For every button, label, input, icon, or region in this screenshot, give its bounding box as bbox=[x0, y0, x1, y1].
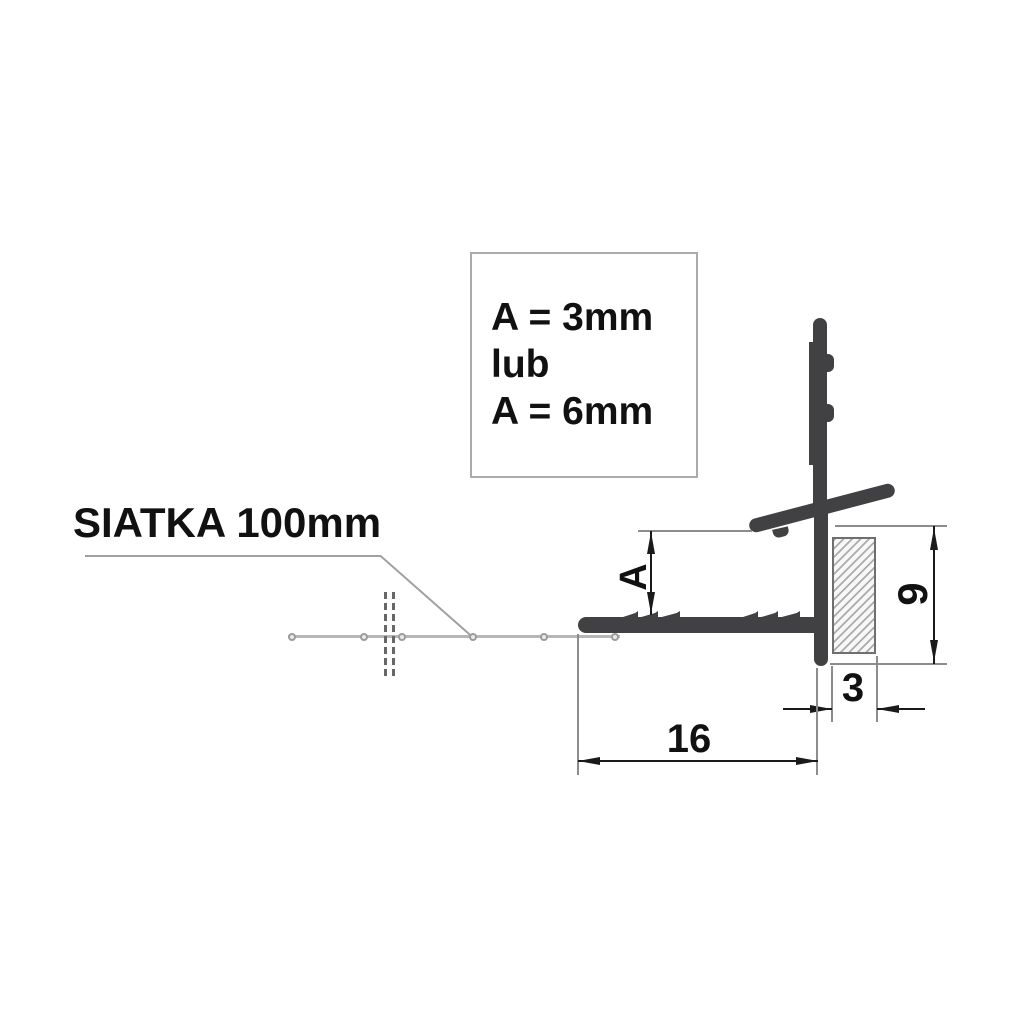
technical-drawing-canvas: A = 3mm lub A = 6mm SIATKA 100mm A 9 bbox=[0, 0, 1024, 1024]
mesh-break-mark-left bbox=[384, 592, 387, 679]
dim-9-arrow-up-icon bbox=[930, 528, 938, 550]
mesh-node bbox=[469, 633, 477, 641]
annotation-line-a6: A = 6mm bbox=[491, 388, 696, 435]
profile-base-flange bbox=[578, 617, 823, 633]
hatched-filler-block bbox=[832, 537, 876, 654]
mesh-node bbox=[611, 633, 619, 641]
profile-stem-lower bbox=[814, 504, 828, 666]
mesh-node bbox=[540, 633, 548, 641]
mesh-break-mark-right bbox=[392, 592, 395, 679]
leader-line-horizontal bbox=[85, 555, 381, 557]
dim-a-arrow-up-icon bbox=[647, 532, 655, 554]
profile-stem-sleeve bbox=[809, 342, 817, 465]
dim-a-label: A bbox=[612, 553, 656, 601]
dim-16-arrow-right-icon bbox=[796, 757, 818, 765]
dim-3-arrow-left-icon bbox=[877, 705, 899, 713]
annotation-box: A = 3mm lub A = 6mm bbox=[470, 252, 698, 478]
mesh-line bbox=[288, 635, 620, 638]
dim-3-arrow-right-icon bbox=[810, 705, 832, 713]
dim-16-extension-left bbox=[577, 634, 579, 775]
cross-arm-bump bbox=[772, 526, 790, 538]
annotation-line-lub: lub bbox=[491, 341, 696, 388]
mesh-node bbox=[360, 633, 368, 641]
mesh-node bbox=[288, 633, 296, 641]
annotation-line-a3: A = 3mm bbox=[491, 294, 696, 341]
dim-a-extension-line bbox=[638, 530, 752, 532]
stem-barb-lower bbox=[823, 404, 834, 422]
dim-3-label: 3 bbox=[833, 666, 873, 710]
mesh-callout-label: SIATKA 100mm bbox=[73, 499, 381, 547]
dim-9-arrow-down-icon bbox=[930, 640, 938, 662]
dim-9-label: 9 bbox=[889, 569, 937, 619]
mesh-node bbox=[398, 633, 406, 641]
stem-barb-upper bbox=[823, 354, 834, 372]
dim-16-arrow-left-icon bbox=[578, 757, 600, 765]
dim-16-label: 16 bbox=[659, 717, 719, 761]
dim-9-extension-top bbox=[835, 525, 947, 527]
